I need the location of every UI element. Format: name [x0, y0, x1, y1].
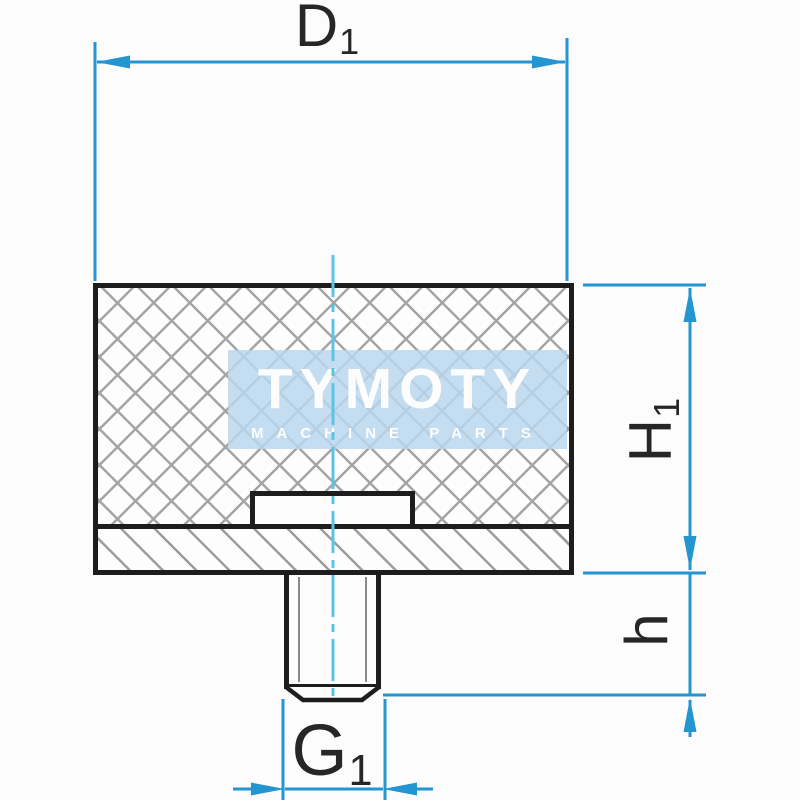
g1-arrow-left-icon: [251, 783, 285, 796]
dimension-label-g1: G1: [291, 715, 372, 787]
buffer-body: TYMOTY MACHINE PARTS: [93, 283, 574, 575]
g1-base: G: [291, 711, 347, 791]
watermark-brand: TYMOTY: [258, 361, 538, 418]
watermark-tagline: MACHINE PARTS: [251, 426, 544, 441]
h-arrow-up-icon: [684, 698, 697, 732]
watermark: TYMOTY MACHINE PARTS: [228, 350, 567, 449]
h-base: h: [613, 613, 680, 646]
d1-arrow-right-icon: [532, 56, 566, 69]
h1-arrow-bottom-icon: [684, 536, 697, 570]
d1-base: D: [295, 0, 338, 59]
thread-minor-line-right: [365, 577, 367, 682]
washer-recess: [250, 491, 415, 524]
dimension-label-h1: H1: [621, 398, 681, 462]
threaded-stud: [284, 575, 381, 689]
d1-arrow-left-icon: [96, 56, 130, 69]
h1-arrow-top-icon: [684, 288, 697, 322]
dimension-label-d1: D1: [295, 0, 359, 56]
dimension-label-h: h: [617, 613, 677, 646]
d1-subscript: 1: [339, 21, 359, 62]
technical-drawing-canvas: TYMOTY MACHINE PARTS: [0, 0, 800, 800]
h1-base: H: [617, 419, 684, 462]
g1-subscript: 1: [348, 747, 372, 795]
g1-arrow-right-icon: [383, 783, 417, 796]
plate-separation-line: [93, 524, 574, 529]
base-plate: [98, 529, 569, 570]
h1-subscript: 1: [646, 398, 687, 418]
thread-minor-line-left: [298, 577, 300, 682]
